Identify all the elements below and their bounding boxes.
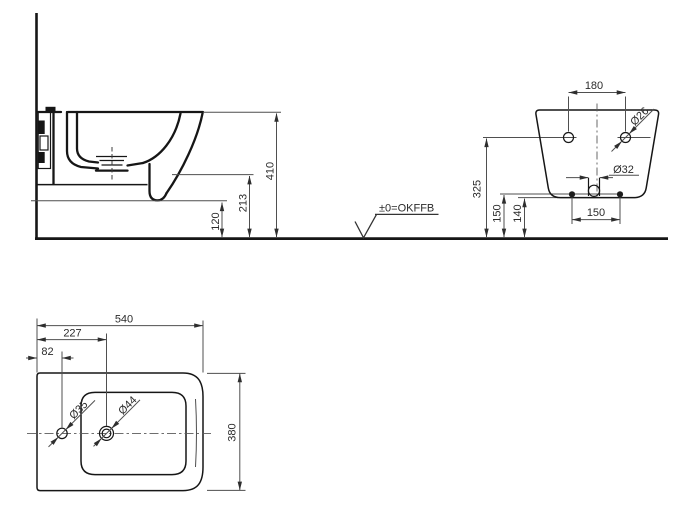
drain-hole	[588, 185, 599, 196]
front-curvature-line	[196, 399, 197, 467]
dim-spray-hole-offset: 227	[63, 328, 81, 340]
dim-fixing-hole-height: 325	[472, 180, 484, 198]
dim-body-bottom-height: 140	[512, 204, 524, 222]
dim-lower-fixing-spacing: 150	[587, 207, 605, 219]
dim-depth: 540	[115, 314, 133, 326]
bracket-inner	[40, 136, 48, 150]
side-view: 120 213 410 ±0=OKFFB	[31, 107, 439, 238]
dim-tap-hole-offset: 82	[41, 346, 53, 358]
bracket-section	[38, 152, 45, 163]
label-tap-hole-diameter: Ø35	[67, 399, 90, 422]
technical-drawing-canvas: 120 213 410 ±0=OKFFB 180 Ø26 Ø32	[0, 0, 700, 515]
dim-underside-height: 213	[238, 194, 250, 212]
label-drain-diameter: Ø32	[613, 164, 634, 176]
lower-fixing-point-left	[569, 191, 575, 197]
bracket-section	[38, 121, 45, 135]
basin-bottom	[128, 163, 144, 166]
bidet-front-face	[167, 113, 203, 193]
lower-fixing-point-right	[617, 191, 623, 197]
label-fixing-hole-diameter: Ø26	[628, 105, 651, 128]
outlet-foot	[150, 164, 167, 200]
technical-drawing-page: 120 213 410 ±0=OKFFB 180 Ø26 Ø32	[0, 0, 700, 515]
datum-level-icon	[355, 214, 377, 237]
label-spray-hole-diameter: Ø44	[116, 394, 139, 417]
dimension-arrows	[580, 175, 609, 179]
top-view: 540 227 82 Ø35 Ø44 380	[26, 314, 246, 491]
dim-width: 380	[227, 423, 239, 441]
rear-view: 180 Ø26 Ø32 150 325 150 140	[472, 80, 659, 237]
basin-front-inner	[143, 114, 181, 164]
dim-lower-fixing-height: 150	[492, 204, 504, 222]
dim-overall-height: 410	[265, 162, 277, 180]
datum-label: ±0=OKFFB	[379, 203, 434, 215]
dim-hole-spacing: 180	[585, 80, 603, 92]
dim-outlet-height: 120	[210, 212, 222, 230]
basin-back-inner	[77, 112, 98, 163]
